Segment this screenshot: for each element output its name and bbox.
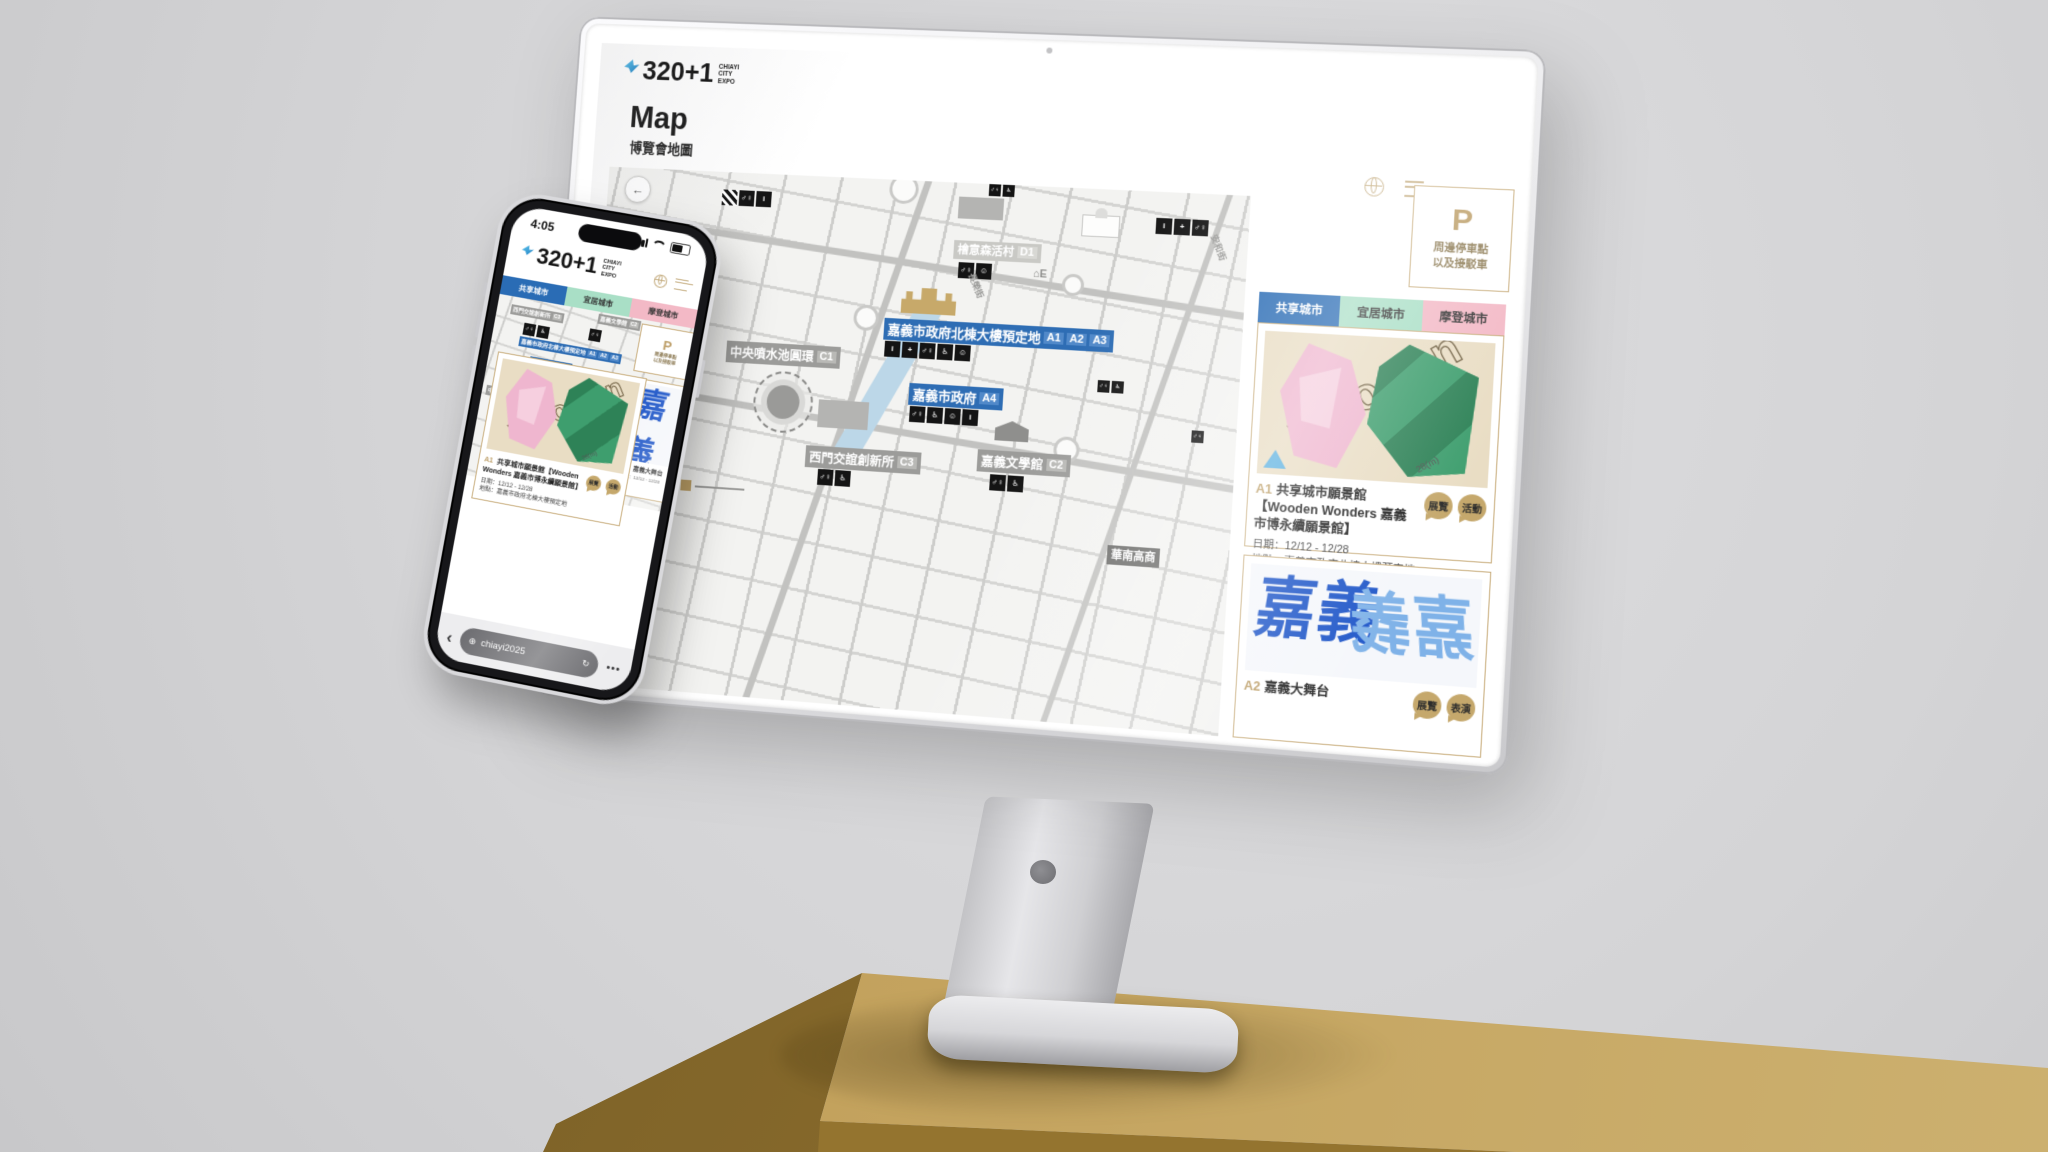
wooden-wonders-image: wooden 28(m) [1257,331,1496,488]
logo-text: 320+1 [535,245,599,277]
place-label: 地點： [478,486,497,495]
card-badges: 展覽 活動 [585,474,622,495]
poi-icons: ♂♀ [1191,430,1204,443]
scale-line [695,485,745,490]
wheelchair-icon: ♿ [536,325,550,339]
restroom-icon: ♂♀ [739,190,755,206]
wheelchair-icon: ♿ [834,470,851,487]
language-globe-icon[interactable] [1364,177,1385,197]
scale-box [680,480,691,492]
zone-badge: C2 [1046,458,1067,471]
badge-performance: 表演 [1446,693,1476,722]
wheelchair-icon: ♿ [1007,475,1024,492]
tab-modern-city[interactable]: 摩登城市 [1421,300,1506,335]
poi-icons: ♂♀ ♿ [817,469,851,487]
page-subtitle: 博覽會地圖 [629,137,694,159]
poi-icons: i + ♂♀ [1155,218,1208,237]
map-label-text: 嘉義市政府 [912,384,977,407]
venue-code: A1 [1255,481,1272,496]
temple-building-illustration [1081,214,1120,238]
tab-livable-city[interactable]: 宜居城市 [1339,296,1423,331]
zone-badge: A2 [598,352,608,360]
zone-badge: C3 [897,456,917,469]
card-title: A2嘉義大舞台 [1243,677,1409,708]
info-icon: i [1155,218,1172,235]
date-value: 12/12 - 12/28 [1284,539,1349,556]
card-badges: 展覽 表演 [1412,690,1476,722]
logo-tagline: CHIAYI CITY EXPO [718,64,740,86]
card-title: A1共享城市願景館 【Wooden Wonders 嘉義市博永續願景館】 [1253,480,1421,543]
badge-exhibition: 展覽 [585,474,602,492]
parking-info-box: P 周邊停車點 以及接駁車 [633,323,694,381]
reload-icon[interactable]: ↻ [581,657,590,669]
restroom-icon: ♂♀ [989,474,1006,491]
poi-icons: ♂♀ [588,328,602,342]
logo-tagline: CHIAYI CITY EXPO [600,259,621,281]
wooden-wonders-image: wooden 28(m) [486,358,640,474]
webcam-dot [1046,47,1052,53]
poster-text-mirror: 嘉義 [1345,567,1476,675]
station-label: ⌂E [1033,268,1048,281]
wifi-icon [650,239,668,256]
map-label-text: 檜意森活村 [957,241,1014,260]
zone-badge: C2 [629,321,639,329]
landmark-pattern-icon [721,189,737,205]
parking-info-box: P 周邊停車點 以及接駁車 [1408,185,1514,292]
mute-switch [482,282,488,296]
zone-badge: A3 [610,354,620,362]
map-label[interactable]: 華南高商 [1106,545,1160,568]
page-title: Map [629,100,689,137]
pink-structure [1276,342,1370,470]
restroom-icon: ♂♀ [1192,220,1209,237]
battery-icon [669,242,691,256]
restroom-icon: ♂♀ [588,328,602,342]
zone-badge: C3 [552,314,562,322]
menu-icon[interactable] [674,278,689,291]
parking-icon: P [1451,206,1474,238]
browser-more-button[interactable]: ••• [605,662,622,677]
wheelchair-icon: ♿ [1002,185,1015,197]
date-label: 日期： [1252,537,1285,552]
map-label-text: 西門交誼創新所 [809,446,895,470]
badge-exhibition: 展覽 [1424,491,1454,520]
wheelchair-icon: ♿ [1111,381,1124,394]
site-logo[interactable]: 320+1 CHIAYI CITY EXPO [519,242,622,281]
wheelchair-icon: ♿ [926,407,943,424]
map-label-text: 中央噴水池圓環 [730,342,815,366]
restroom-icon: ♂♀ [817,469,834,486]
restroom-icon: ♂♀ [1097,380,1110,393]
baby-icon: ☺ [954,345,971,362]
venue-fullname: 【Wooden Wonders 嘉義市博永續願景館】 [1253,498,1420,544]
zone-badge: C1 [816,350,836,363]
zone-badge: A4 [979,392,1000,405]
badge-exhibition: 展覽 [1412,690,1442,719]
venue-name: 嘉義大舞台 [1264,680,1330,700]
zone-badge: A2 [1066,332,1087,345]
status-icons [633,234,691,259]
firstaid-icon: + [901,342,918,359]
info-icon: i [884,341,901,358]
badge-activity: 活動 [1457,494,1487,523]
site-globe-icon: ⊕ [468,635,477,647]
cable-hole [1030,860,1056,884]
pink-structure [498,366,565,452]
logo-text: 320+1 [642,58,715,87]
venue-code: A2 [1243,678,1260,694]
baby-icon: ☺ [944,408,961,425]
status-time: 4:05 [530,216,556,234]
zone-badge: A3 [1089,334,1110,347]
poi-icons: ♂♀ i [721,189,771,207]
blue-structure [1263,449,1287,469]
map-label-text: 嘉義文學館 [981,450,1044,473]
card-badges: 展覽 活動 [1424,491,1488,522]
bird-logo-icon [521,244,535,256]
wheelchair-icon: ♿ [937,344,954,361]
venue-card-a1[interactable]: wooden 28(m) A1共享城市願景館 【Wooden Wonders 嘉… [1244,322,1504,563]
zone-badge: D1 [1017,246,1038,259]
firstaid-icon: + [1174,219,1191,236]
restroom-icon: ♂♀ [522,323,536,337]
mockup-scene: 320+1 CHIAYI CITY EXPO Map 博覽會地圖 [0,0,2048,1152]
building-illustration [817,399,869,430]
restroom-icon: ♂♀ [1191,430,1204,443]
poi-icons: ♂♀ ♿ [989,474,1024,492]
poi-icons: ♂♀ ♿ [989,184,1015,197]
map-label-text: 華南高商 [1111,546,1156,565]
parking-line: 以及接駁車 [1432,255,1488,272]
tagline-line: EXPO [718,78,739,86]
restroom-icon: ♂♀ [909,406,926,423]
header-icons [653,274,689,293]
dynamic-island [577,223,643,252]
bird-logo-icon [624,59,640,73]
badge-activity: 活動 [605,478,622,496]
info-icon: i [962,409,979,426]
fountain-core [766,384,801,420]
building-illustration [958,197,1005,221]
restroom-icon: ♂♀ [989,184,1002,196]
browser-back-button[interactable]: ‹ [445,628,454,646]
zone-badge: A1 [1043,331,1064,344]
desktop-screen: 320+1 CHIAYI CITY EXPO Map 博覽會地圖 [555,43,1534,759]
zone-badge: A1 [587,350,597,358]
site-logo[interactable]: 320+1 CHIAYI CITY EXPO [623,57,739,87]
venue-code: A1 [484,456,494,464]
stage-poster-image: 嘉義 嘉義 [1245,563,1483,688]
venue-card-a1[interactable]: wooden 28(m) A1共享城市願景館【Wooden Wonders 嘉義… [471,351,647,526]
url-text: chiayi2025 [480,637,578,667]
info-icon: i [756,191,772,207]
poi-icons: ♂♀ ♿ [1097,380,1124,394]
restroom-icon: ♂♀ [919,343,936,360]
venue-card-a2[interactable]: 嘉義 嘉義 A2嘉義大舞台 展覽 表演 [1233,554,1492,757]
language-globe-icon[interactable] [653,274,668,289]
tab-shared-city[interactable]: 共享城市 [1258,292,1341,327]
